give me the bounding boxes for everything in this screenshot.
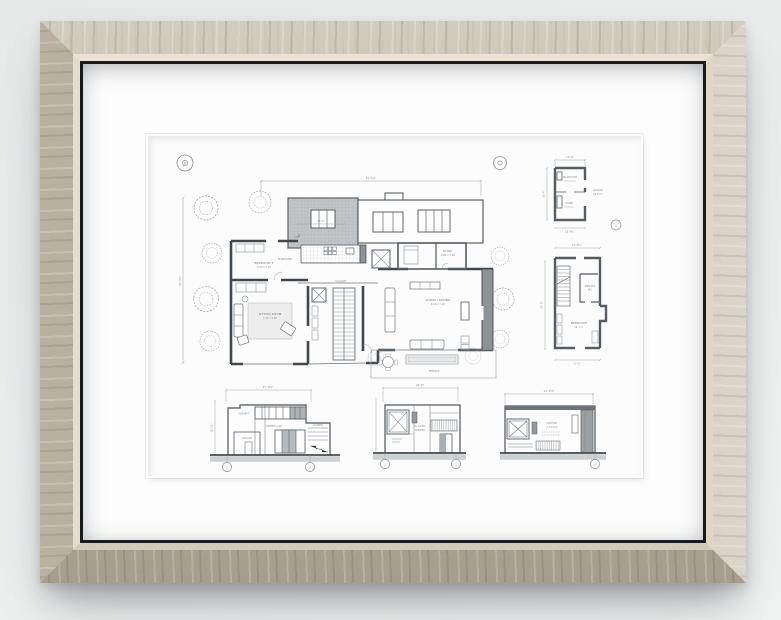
garage-plan: 19'-8" 18'-9¾" 16'-4" WORKSHOP STORE GAR… xyxy=(543,156,622,234)
study-label: STUDY xyxy=(443,249,453,253)
svg-text:3: 3 xyxy=(455,463,457,466)
hall-label: HALLWAY xyxy=(335,280,347,283)
architectural-drawing: 0 xyxy=(148,136,641,476)
e2-render-label: RENDER xyxy=(415,429,425,432)
garage-dim-top: 19'-8" xyxy=(566,156,573,159)
dim-top-label: 31'-5¾" xyxy=(366,176,377,180)
dim-skylight-label: 12'-2" xyxy=(317,220,324,223)
e1-dim-left: 11'-10" xyxy=(211,424,214,433)
workshop-label: WORKSHOP xyxy=(563,176,578,179)
e2-dim-top: 23'-8" xyxy=(416,383,424,387)
wall: { "palette":{ "wall":"#ebedec","frame_li… xyxy=(0,0,781,620)
living-label: LIVING / DINING xyxy=(426,298,451,302)
e1-screen-label: SCREEN xyxy=(313,424,323,427)
ensuite-sub: WC xyxy=(588,289,592,292)
mat-board: 0 xyxy=(83,64,703,540)
e2-glazing-label: GLAZING xyxy=(415,425,426,428)
e2-ground-bar xyxy=(373,454,466,460)
svg-text:2: 2 xyxy=(384,463,386,466)
garage-label: GARAGE xyxy=(593,189,604,192)
terrace-label: TERRACE xyxy=(428,370,440,373)
wardrobe-label: WARDROBE xyxy=(278,258,293,261)
bedroom-sub: 16.4 m² xyxy=(574,326,584,329)
site-plan: 0 xyxy=(177,155,514,378)
sitting-sub: 4.10 x 4.60 xyxy=(263,317,277,320)
store-label: STORE xyxy=(565,202,574,205)
study-room xyxy=(398,243,466,269)
elevation-2: 23'-8" GLAZING xyxy=(373,383,466,469)
e1-ground-bar xyxy=(210,456,340,462)
svg-text:4: 4 xyxy=(309,466,311,469)
garage-dim-left: 16'-4" xyxy=(543,190,546,197)
elevation-3: 21'-9½" CARPORT 2.70 CLG xyxy=(500,389,606,469)
dim-top xyxy=(260,180,483,197)
bedroom-dim-left: 21'-4" xyxy=(541,301,544,308)
bedroom2-sub: 3.60 x 4.20 xyxy=(257,266,271,269)
bedroom-label: BEDROOM xyxy=(571,321,587,325)
terrace xyxy=(368,348,496,378)
e3-ground-bar xyxy=(500,454,606,460)
datum-marker-b xyxy=(494,157,507,170)
bedroom-dim-top: 14'-6½" xyxy=(572,243,582,247)
e3-slit-window xyxy=(532,422,537,434)
svg-text:1: 1 xyxy=(226,466,228,469)
e3-carport-sub: 2.70 CLG xyxy=(546,426,557,429)
bedroom-dim-bottom: 13'-2" xyxy=(573,363,580,366)
datum-marker-a: 0 xyxy=(177,155,193,171)
e3-hatch-strip xyxy=(536,441,560,450)
svg-text:6: 6 xyxy=(594,463,596,466)
e1-cladding-label: TIMBER CLAD xyxy=(266,425,283,428)
study-sub: 2.80 x 3.40 xyxy=(441,254,455,257)
sitting-label: SITTING ROOM xyxy=(259,312,282,316)
bedroom-plan: 14'-6½" 21'-4" 13'-2" xyxy=(541,243,607,366)
kitchen xyxy=(301,245,390,268)
e3-roof-band xyxy=(505,406,595,410)
e2-slit-window xyxy=(412,412,417,423)
garage-dim-bottom: 18'-9¾" xyxy=(565,231,575,234)
east-wall-poche xyxy=(482,269,493,350)
garage-sub: 19.6 m² xyxy=(593,193,603,196)
artwork-paper: 0 xyxy=(148,136,641,476)
dim-left-label: 52'-10" xyxy=(178,276,182,286)
datum-a-label: 0 xyxy=(184,162,186,166)
living-sub: 6.20 x 7.40 xyxy=(431,303,445,306)
e1-parapet-label: PARAPET xyxy=(239,413,250,416)
living-dining xyxy=(385,282,469,349)
e1-garage-label: GARAGE xyxy=(242,437,253,440)
sitting-room xyxy=(234,296,296,345)
elevation-1: 37'-0¼" 11'-10" PARAPET TIMBER CLAD xyxy=(210,385,340,472)
bedroom2-label: BEDROOM 2 xyxy=(255,261,274,265)
svg-text:0: 0 xyxy=(615,224,617,227)
garage-datum-marker: 0 xyxy=(611,220,621,230)
picture-frame: 0 xyxy=(40,21,746,583)
e3-dim-top: 21'-9½" xyxy=(544,389,555,393)
e1-dim-top: 37'-0¼" xyxy=(263,385,274,389)
e3-carport-label: CARPORT xyxy=(546,422,558,425)
e2-balustrade xyxy=(431,420,457,431)
e3-right-band xyxy=(581,410,593,453)
bedroom-stair xyxy=(557,266,570,306)
